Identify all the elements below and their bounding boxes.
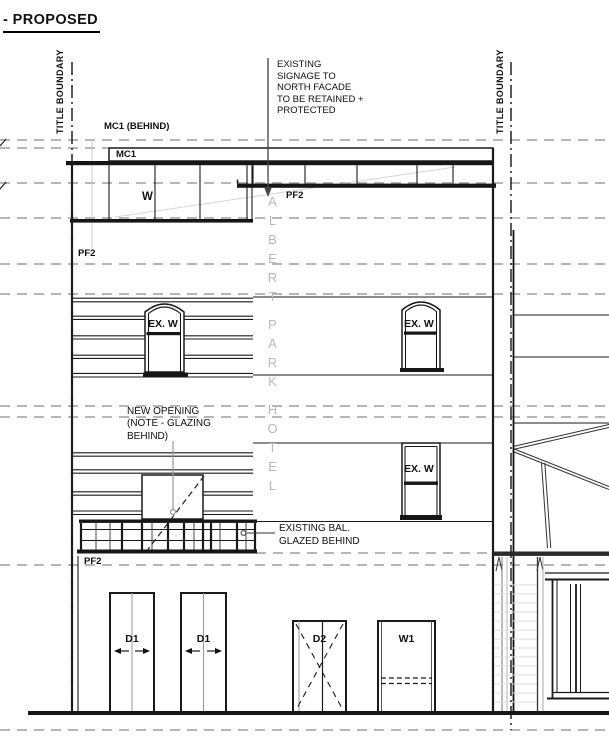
title-boundary-label-left: TITLE BOUNDARY (55, 49, 65, 134)
pf2-tag-top: PF2 (286, 190, 303, 201)
pf2-awning (237, 180, 496, 188)
w-tag: W (142, 191, 153, 203)
title-boundary-label-right: TITLE BOUNDARY (495, 49, 505, 134)
hotel-sign-word-albert: ALBERT (265, 194, 280, 308)
hotel-sign-word-hotel: HOTEL (265, 402, 280, 497)
pf2-tag-low: PF2 (84, 556, 101, 567)
pf2-tag-mid: PF2 (78, 248, 95, 259)
page-title: - PROPOSED (3, 12, 100, 33)
new-opening-note: NEW OPENING (NOTE - GLAZING BEHIND) (127, 406, 211, 443)
w1-tag: W1 (378, 633, 435, 645)
ex-w-tag-right-upper: EX. W (404, 318, 434, 330)
door-d1-left (110, 593, 154, 713)
window-ex-w-right-lower (400, 443, 442, 520)
d1-tag-left: D1 (110, 633, 154, 645)
mc1-behind-label: MC1 (BEHIND) (104, 121, 169, 132)
existing-bal-note: EXISTING BAL. GLAZED BEHIND (279, 522, 360, 548)
signage-leader-arrow (264, 58, 272, 197)
mc1-tag: MC1 (116, 149, 136, 160)
facade-string-courses (253, 297, 493, 522)
ex-w-tag-left: EX. W (148, 318, 178, 330)
d1-tag-right: D1 (181, 633, 226, 645)
hotel-sign-word-park: PARK (265, 317, 280, 393)
door-d1-right (181, 593, 226, 713)
ground-line (28, 711, 609, 715)
d2-tag: D2 (293, 633, 346, 645)
signage-note: EXISTING SIGNAGE TO NORTH FACADE TO BE R… (277, 59, 364, 117)
level-tick-marks (0, 139, 6, 189)
ex-w-tag-right-lower: EX. W (404, 463, 434, 475)
window-ex-w-left (143, 304, 188, 377)
new-opening (142, 441, 204, 552)
elevation-drawing: - PROPOSED TITLE BOUNDARY TITLE BOUNDARY… (0, 0, 609, 750)
brick-course-lines (495, 585, 537, 702)
window-ex-w-right-upper (400, 302, 444, 372)
adjacent-framed-opening (545, 573, 609, 699)
balcony-balustrade (77, 520, 257, 554)
